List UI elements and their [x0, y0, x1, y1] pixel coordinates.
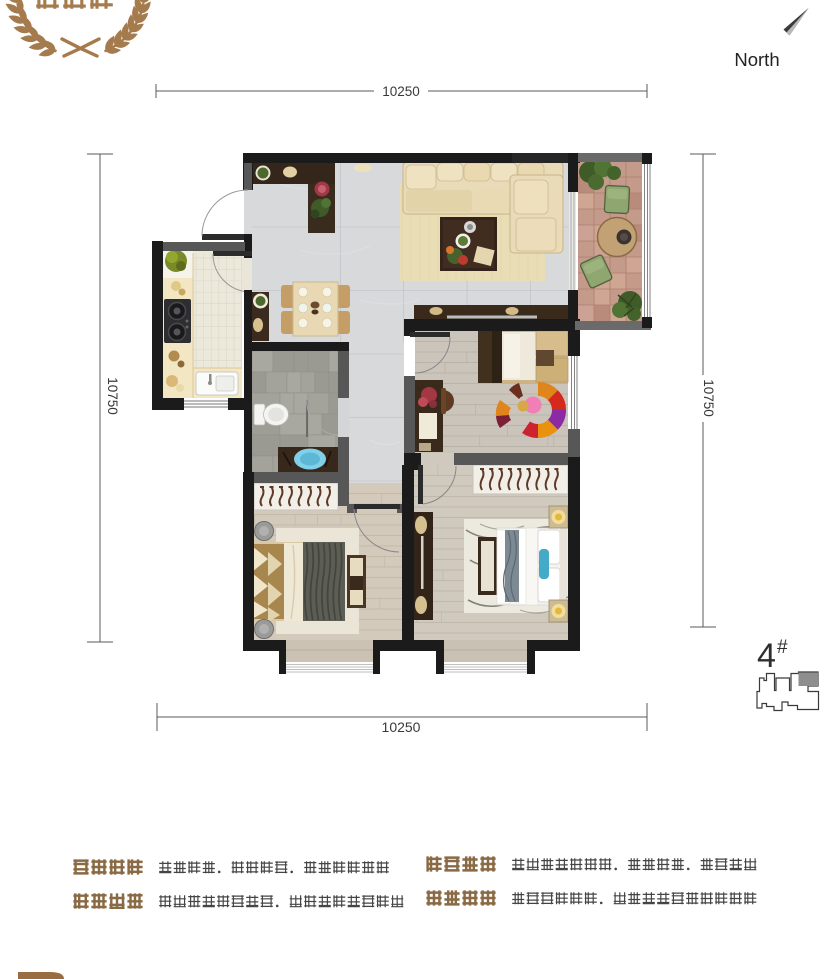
svg-text:10750: 10750 — [701, 379, 716, 417]
svg-text:10750: 10750 — [105, 377, 120, 415]
svg-text:#: # — [777, 637, 788, 658]
svg-text:4: 4 — [757, 637, 776, 675]
svg-text:10250: 10250 — [382, 84, 420, 99]
svg-text:10250: 10250 — [382, 719, 421, 735]
svg-text:North: North — [734, 49, 779, 70]
